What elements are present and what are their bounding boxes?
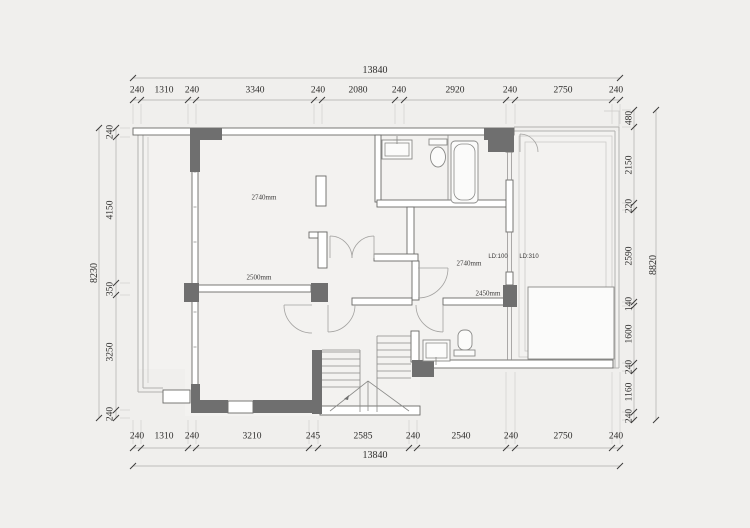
dim-bottom-0: 240 — [130, 432, 144, 442]
dim-bottom-8: 240 — [504, 432, 518, 442]
dim-right-5: 1600 — [625, 325, 635, 344]
dim-right-1: 2150 — [625, 156, 635, 175]
dim-top-7: 2920 — [446, 86, 465, 96]
dim-left-4: 240 — [106, 407, 116, 421]
pillar — [316, 176, 326, 206]
dim-total-bottom: 13840 — [363, 451, 388, 461]
dim-top-10: 240 — [609, 86, 623, 96]
room-dimension-label: 2740mm — [457, 261, 482, 268]
dim-bottom-1: 1310 — [155, 432, 174, 442]
bathtub — [451, 141, 478, 203]
dim-top-3: 3340 — [246, 86, 265, 96]
dim-right-7: 1160 — [625, 383, 635, 402]
dim-right-6: 240 — [625, 360, 635, 374]
dim-left-3: 3250 — [106, 343, 116, 362]
dim-bottom-9: 2750 — [554, 432, 573, 442]
room-dimension-label: 2500mm — [247, 275, 272, 282]
dim-right-8: 240 — [625, 409, 635, 423]
dim-bottom-6: 240 — [406, 432, 420, 442]
floor-plan-drawing — [0, 0, 750, 528]
floor-plan-page: 13840 240 1310 240 3340 240 2080 240 292… — [0, 0, 750, 528]
toilet-small-bath — [458, 330, 472, 350]
dim-top-2: 240 — [185, 86, 199, 96]
dim-right-0: 480 — [625, 111, 635, 125]
dim-top-4: 240 — [311, 86, 325, 96]
dim-left-0: 240 — [106, 125, 116, 139]
dim-top-0: 240 — [130, 86, 144, 96]
dim-bottom-5: 2585 — [354, 432, 373, 442]
room-dimension-label: 2740mm — [252, 195, 277, 202]
dim-bottom-3: 3210 — [243, 432, 262, 442]
dim-total-top: 13840 — [363, 66, 388, 76]
dim-total-left: 8230 — [90, 263, 100, 283]
dim-bottom-2: 240 — [185, 432, 199, 442]
dim-top-1: 1310 — [155, 86, 174, 96]
dim-bottom-10: 240 — [609, 432, 623, 442]
dim-bottom-7: 2540 — [452, 432, 471, 442]
dim-right-4: 140 — [625, 297, 635, 311]
room-dimension-label: 2450mm — [476, 291, 501, 298]
dim-right-3: 2590 — [625, 247, 635, 266]
balcony-platform — [528, 287, 614, 359]
dim-total-right: 8820 — [649, 255, 659, 275]
window-ld-label: LD:100 — [488, 254, 507, 260]
dim-left-2: 350 — [106, 282, 116, 296]
dim-top-9: 2750 — [554, 86, 573, 96]
dim-top-8: 240 — [503, 86, 517, 96]
dim-right-2: 220 — [625, 199, 635, 213]
dim-top-6: 240 — [392, 86, 406, 96]
toilet-top-bath — [429, 139, 447, 145]
window-ld-label: LD:310 — [519, 254, 538, 260]
dim-left-1: 4150 — [106, 201, 116, 220]
dim-bottom-4: 245 — [306, 432, 320, 442]
dim-top-5: 2080 — [349, 86, 368, 96]
